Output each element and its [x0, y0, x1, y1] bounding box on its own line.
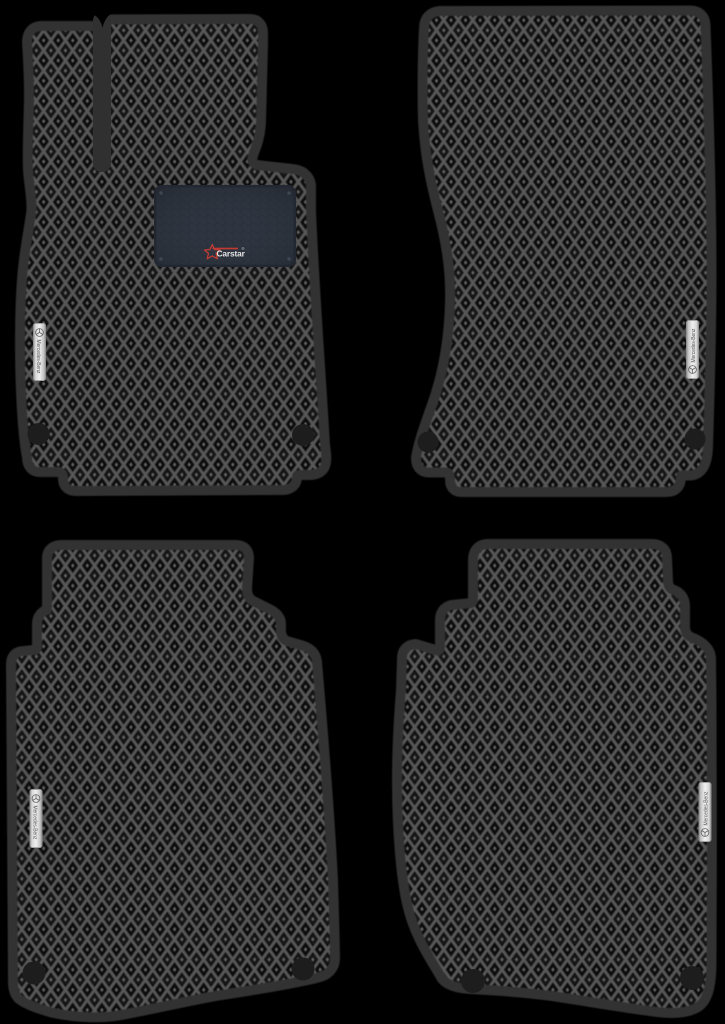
svg-text:Mercedes-Benz: Mercedes-Benz — [703, 791, 709, 825]
svg-text:Mercedes-Benz: Mercedes-Benz — [35, 340, 41, 374]
svg-text:Mercedes-Benz: Mercedes-Benz — [32, 806, 38, 840]
svg-text:Mercedes-Benz: Mercedes-Benz — [691, 328, 697, 362]
svg-text:®: ® — [242, 246, 245, 251]
